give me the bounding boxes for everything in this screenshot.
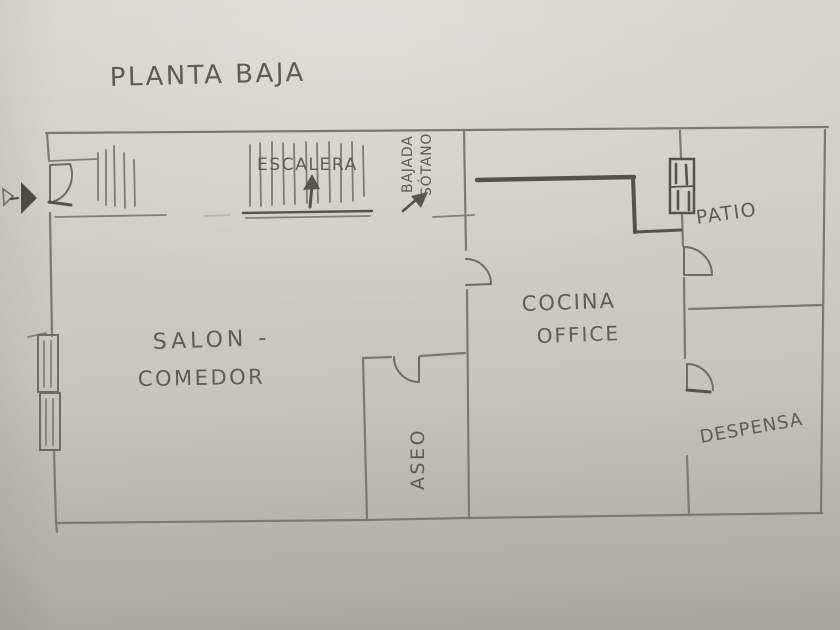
wall-left-middle bbox=[50, 213, 52, 336]
wall-aseo-top-left bbox=[363, 357, 391, 358]
entry-stair-lines bbox=[98, 146, 135, 208]
wall-patio-above-window bbox=[680, 131, 681, 159]
tread bbox=[363, 146, 364, 196]
wall-left-upper bbox=[47, 133, 49, 161]
despensa-door-sill bbox=[687, 390, 710, 392]
entrance-door-arc bbox=[50, 164, 72, 203]
label-patio: PATIO bbox=[695, 199, 759, 229]
despensa-door-arc bbox=[687, 364, 713, 390]
salon-window-2-icon bbox=[40, 393, 60, 450]
wall-aseo-top-right bbox=[420, 353, 465, 356]
wall-entry-bottom bbox=[55, 215, 166, 217]
wall-landing bbox=[433, 215, 474, 217]
counter-top bbox=[477, 177, 634, 180]
labels: PLANTA BAJA ESCALERA SALON - COMEDOR COC… bbox=[109, 58, 804, 490]
counter-bottom bbox=[635, 230, 681, 232]
floor-plan-sketch: PLANTA BAJA ESCALERA SALON - COMEDOR COC… bbox=[0, 0, 840, 630]
wall-faint-segment bbox=[205, 215, 230, 216]
label-cocina-line2: OFFICE bbox=[536, 321, 620, 348]
entrance-arrow-icon bbox=[3, 182, 37, 214]
wall-cocina-divider-lower bbox=[467, 290, 469, 518]
entry-line bbox=[124, 153, 125, 208]
kitchen-counter bbox=[477, 177, 681, 232]
wall-patio-despensa-divider bbox=[689, 305, 822, 309]
label-salon-line1: SALON - bbox=[152, 326, 270, 355]
patio-window-icon bbox=[670, 159, 694, 213]
floor-plan-photo: PLANTA BAJA ESCALERA SALON - COMEDOR COC… bbox=[0, 0, 840, 630]
wall-despensa-lower bbox=[687, 456, 689, 515]
wall-right bbox=[821, 130, 825, 513]
wall-entry-top bbox=[49, 159, 97, 161]
wall-aseo-left bbox=[363, 358, 367, 519]
cocina-door-arc bbox=[466, 259, 491, 285]
wall-left-lower bbox=[54, 451, 57, 532]
interior-walls bbox=[49, 130, 822, 519]
wall-cocina-divider-upper bbox=[464, 130, 466, 250]
label-escalera: ESCALERA bbox=[257, 155, 358, 175]
patio-door-arc bbox=[684, 247, 712, 275]
wall-escalera-bottom-2 bbox=[246, 216, 370, 218]
wall-escalera-bottom-1 bbox=[243, 211, 372, 213]
label-cocina-line1: COCINA bbox=[521, 289, 616, 316]
label-bajada-line2: SÓTANO bbox=[417, 133, 435, 196]
wall-bottom bbox=[56, 513, 822, 523]
label-aseo: ASEO bbox=[407, 428, 429, 490]
label-bajada-line1: BAJADA bbox=[400, 135, 416, 193]
salon-window-1-icon bbox=[28, 333, 58, 392]
label-salon-line2: COMEDOR bbox=[138, 365, 266, 391]
label-despensa: DESPENSA bbox=[698, 409, 804, 448]
counter-side bbox=[633, 177, 635, 232]
page-title: PLANTA BAJA bbox=[109, 58, 306, 93]
entry-line bbox=[134, 160, 135, 206]
wall-top bbox=[46, 127, 828, 133]
aseo-door-arc bbox=[394, 357, 419, 382]
entry-line bbox=[114, 146, 115, 206]
entrance-door-sill bbox=[49, 202, 71, 205]
wall-patio-middle bbox=[684, 278, 685, 358]
